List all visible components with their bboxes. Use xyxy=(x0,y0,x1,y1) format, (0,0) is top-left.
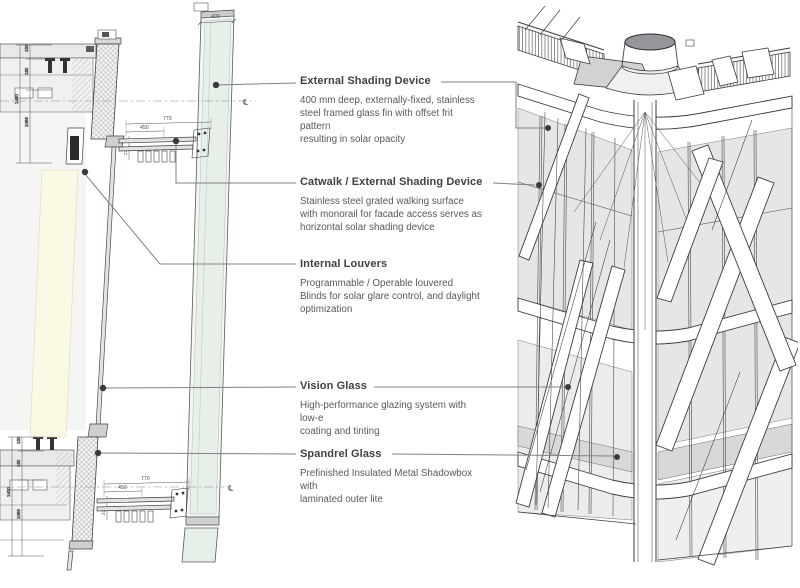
dot-catwalk-3d xyxy=(536,182,542,188)
fin-glass-lower xyxy=(182,528,218,562)
dim-770-top: 770 xyxy=(163,116,172,122)
dim-450-bot: 450 xyxy=(118,485,127,491)
annotation-body: Prefinished Insulated Metal Shadowbox wi… xyxy=(300,468,485,507)
section-detail: 400 1400 150 180 1069 1400 150 180 1 xyxy=(0,3,256,570)
annotation-title: Internal Louvers xyxy=(300,258,485,270)
annotation-body: 400 mm deep, externally-fixed, stainless… xyxy=(300,95,485,147)
dot-vision-section xyxy=(100,385,106,391)
facade-detail-sheet: 400 1400 150 180 1069 1400 150 180 1 xyxy=(0,0,800,588)
bottom-shadowbox xyxy=(72,437,98,541)
axonometric-view xyxy=(516,6,800,565)
dim-180-top: 180 xyxy=(24,67,29,75)
dot-spandrel-3d xyxy=(614,454,620,460)
dot-catwalk-section xyxy=(173,138,179,144)
dim-450-top: 450 xyxy=(140,125,149,131)
catwalk-bracket-bottom: 770 450 225 100 35 xyxy=(97,476,189,522)
roof-plates xyxy=(668,48,774,100)
annotation-internal-louvers: Internal Louvers Programmable / Operable… xyxy=(300,258,485,317)
cylinder-top xyxy=(625,34,675,50)
dot-vision-3d xyxy=(565,384,571,390)
annotation-body: High-performance glazing system with low… xyxy=(300,400,485,439)
dim-1069-top: 1069 xyxy=(24,117,29,127)
annotation-title: External Shading Device xyxy=(300,75,485,87)
vision-glass-edge xyxy=(96,147,116,427)
annotation-body: Programmable / Operable louvered Blinds … xyxy=(300,278,485,317)
annotation-title: Vision Glass xyxy=(300,380,485,392)
centerline-symbol-bottom: ℄ xyxy=(227,484,234,493)
annotation-external-shading-device: External Shading Device 400 mm deep, ext… xyxy=(300,75,485,147)
annotation-title: Catwalk / External Shading Device xyxy=(300,176,485,188)
dim-150-bot: 150 xyxy=(16,436,21,444)
dot-fin-3d xyxy=(545,125,551,131)
dot-spandrel-section xyxy=(95,450,101,456)
dim-400: 400 xyxy=(211,14,220,20)
annotation-vision-glass: Vision Glass High-performance glazing sy… xyxy=(300,380,485,439)
dim-770-bot: 770 xyxy=(141,476,150,482)
external-glass-fin xyxy=(182,3,234,562)
dim-150-top: 150 xyxy=(24,44,29,52)
dim-1400-top: 1400 xyxy=(14,94,19,104)
dim-1400-bot: 1400 xyxy=(6,487,11,497)
annotation-catwalk: Catwalk / External Shading Device Stainl… xyxy=(300,176,485,235)
dim-1069-bot: 1069 xyxy=(16,509,21,519)
bottom-slab xyxy=(0,436,74,540)
dim-180-bot: 180 xyxy=(16,459,21,467)
dot-louver-section xyxy=(82,169,88,175)
louver-roller xyxy=(70,136,79,160)
annotation-body: Stainless steel grated walking surface w… xyxy=(300,196,485,235)
annotation-spandrel-glass: Spandrel Glass Prefinished Insulated Met… xyxy=(300,448,485,507)
annotation-title: Spandrel Glass xyxy=(300,448,485,460)
dot-fin-section xyxy=(213,82,219,88)
centerline-symbol-top: ℄ xyxy=(242,98,249,107)
